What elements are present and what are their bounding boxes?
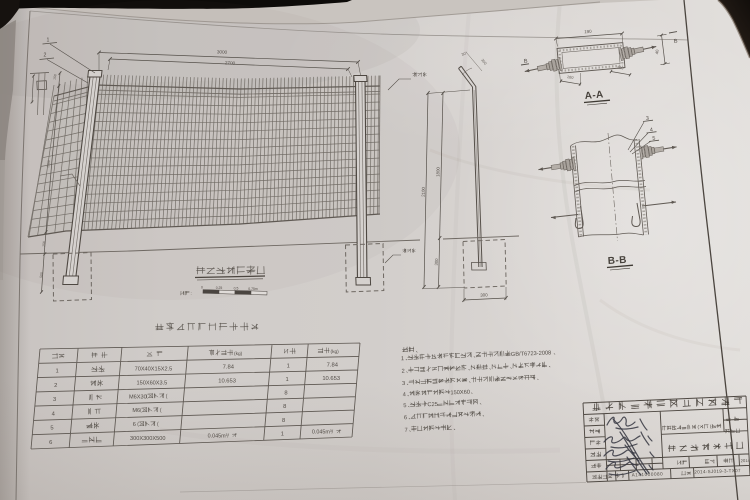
svg-text:(kg): (kg): [234, 351, 243, 357]
svg-text:1: 1: [287, 363, 290, 369]
svg-text:1: 1: [47, 38, 50, 44]
svg-text:2: 2: [54, 383, 57, 389]
svg-text:2700: 2700: [225, 60, 236, 65]
svg-text:6: 6: [133, 422, 136, 428]
svg-text:2: 2: [44, 53, 47, 59]
svg-text:10.653: 10.653: [322, 376, 340, 382]
svg-text:7.84: 7.84: [327, 362, 339, 368]
svg-text:0: 0: [201, 286, 203, 290]
svg-text:300X300X500: 300X300X500: [130, 436, 165, 442]
svg-text:0.045m³/: 0.045m³/: [208, 434, 230, 440]
svg-text:150X60: 150X60: [450, 390, 470, 397]
svg-text:1: 1: [285, 377, 288, 383]
svg-text:6: 6: [404, 415, 407, 421]
svg-text:300: 300: [434, 258, 439, 266]
svg-text:7: 7: [404, 428, 407, 434]
svg-text:M6: M6: [132, 408, 140, 414]
svg-text:150X60X3.5: 150X60X3.5: [137, 380, 168, 386]
svg-text:190: 190: [584, 29, 592, 35]
svg-text:500: 500: [39, 272, 44, 278]
svg-text:C25: C25: [427, 402, 438, 408]
svg-text:1: 1: [55, 369, 58, 375]
svg-text:1800: 1800: [435, 166, 440, 176]
svg-text:6: 6: [49, 440, 52, 446]
svg-text:150: 150: [42, 241, 47, 247]
svg-text:(kg): (kg): [331, 349, 340, 355]
svg-text:B-B: B-B: [607, 255, 627, 267]
svg-text:4: 4: [403, 392, 406, 398]
svg-text:5: 5: [50, 426, 53, 432]
svg-text:10.653: 10.653: [218, 379, 236, 385]
svg-text:0.25: 0.25: [216, 286, 223, 290]
svg-text:3: 3: [402, 381, 405, 387]
svg-text:0.75m: 0.75m: [248, 287, 258, 291]
svg-text:8: 8: [282, 418, 285, 424]
svg-text:2014.06: 2014.06: [741, 458, 750, 464]
svg-text:8: 8: [284, 391, 287, 397]
svg-text:1: 1: [401, 356, 404, 362]
svg-text:A-A: A-A: [584, 89, 604, 102]
svg-text:1: 1: [281, 431, 284, 437]
svg-text:7.84: 7.84: [223, 365, 235, 371]
svg-text:300: 300: [480, 292, 488, 297]
svg-text:2100: 2100: [421, 186, 426, 196]
svg-text::: :: [191, 291, 192, 296]
svg-text:0.5: 0.5: [234, 287, 239, 291]
svg-text:3: 3: [53, 397, 56, 403]
svg-text:70X40X15X2.5: 70X40X15X2.5: [135, 366, 173, 372]
svg-text:M6X30: M6X30: [129, 394, 147, 400]
svg-text:3000: 3000: [217, 49, 228, 54]
svg-text:5: 5: [403, 403, 406, 409]
svg-text:2: 2: [401, 369, 404, 375]
svg-text:0.045m³/: 0.045m³/: [312, 430, 334, 436]
svg-text:8: 8: [283, 404, 286, 410]
